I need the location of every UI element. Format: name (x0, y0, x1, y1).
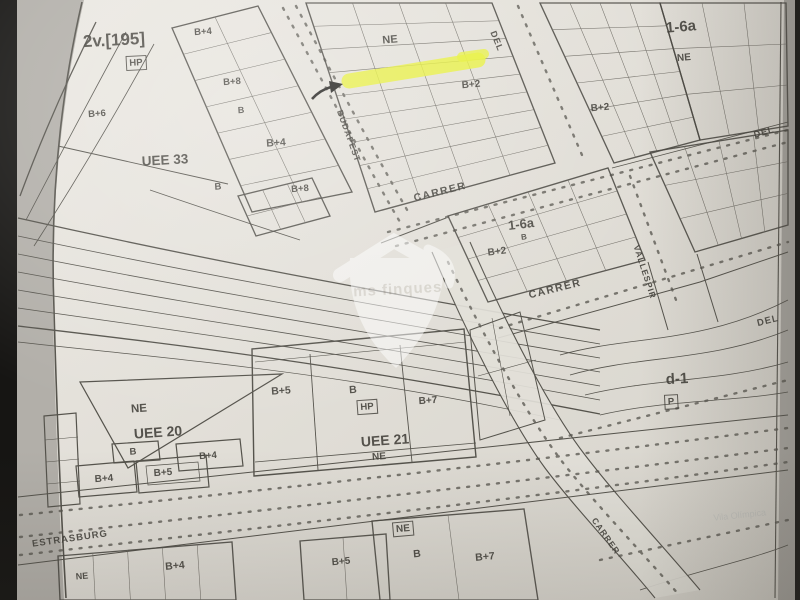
map-label-text-zone-uee-21: UEE 21 (360, 430, 409, 449)
map-label-text-b5-uee21: B+5 (271, 384, 292, 397)
map-label-ne-uee20: NE (131, 402, 148, 415)
map-label-zone-uee-33: UEE 33 (141, 151, 189, 168)
map-label-text-b2-top-center: B+2 (461, 79, 481, 92)
map-label-text-b2-top-right: B+2 (590, 102, 610, 115)
map-label-b8-nw: B+8 (223, 76, 241, 88)
map-label-text-b8-nw-2: B+8 (291, 183, 309, 195)
map-label-text-b-s: B (413, 548, 422, 561)
map-label-b5-s: B+5 (331, 556, 351, 569)
map-label-text-b6-w: B+6 (88, 108, 106, 120)
map-label-zone-2v-195: 2v.[195] (83, 29, 146, 51)
map-label-zone-uee-20: UEE 20 (133, 422, 182, 441)
map-label-text-b2-center: B+2 (487, 245, 507, 258)
map-label-b-uee20: B (129, 446, 137, 457)
map-label-text-ne-s-mid: NE (396, 523, 411, 535)
map-label-text-zone-uee-33: UEE 33 (141, 151, 189, 168)
map-label-text-ne-top-center: NE (382, 33, 398, 46)
map-label-b2-top-center: B+2 (461, 79, 481, 92)
map-label-text-b7-s: B+7 (475, 550, 496, 564)
map-label-b-nw-1: B (237, 105, 245, 115)
map-label-text-hp-box-nw: HP (129, 57, 143, 69)
map-label-text-zone-2v-195: 2v.[195] (83, 29, 146, 51)
map-label-text-ne-uee21: NE (372, 451, 387, 463)
map-label-text-ne-uee20: NE (131, 402, 148, 415)
map-label-zone-1-6a-ne: 1-6a (665, 17, 697, 37)
map-label-text-b4-s: B+4 (165, 559, 186, 573)
map-label-b7-uee21: B+7 (418, 395, 438, 407)
map-label-b4-nw-2: B+4 (266, 136, 287, 149)
photographed-cadastral-map: 2v.[195]HPB+4B+8B+6BB+4BB+8UEE 33NEDELB+… (0, 0, 800, 600)
map-label-ne-uee21: NE (372, 451, 387, 463)
map-label-text-b4-uee20-1: B+4 (199, 450, 218, 462)
map-label-text-b4-uee20-2: B+4 (94, 473, 114, 485)
map-label-b5-uee20: B+5 (153, 467, 173, 479)
map-label-text-b5-s: B+5 (331, 556, 351, 569)
map-label-text-ne-top-right: NE (677, 52, 692, 64)
map-label-zone-d-1: d-1 (665, 370, 688, 388)
map-label-b4-s: B+4 (165, 559, 186, 573)
map-label-zone-uee-21: UEE 21 (360, 430, 409, 449)
map-label-b7-s: B+7 (475, 550, 496, 564)
cadastral-map-canvas: 2v.[195]HPB+4B+8B+6BB+4BB+8UEE 33NEDELB+… (0, 0, 800, 600)
map-label-b-s: B (413, 548, 422, 561)
map-label-text-b5-uee20: B+5 (153, 467, 173, 479)
map-label-b4-nw-1: B+4 (194, 26, 213, 38)
map-label-text-b4-nw-1: B+4 (194, 26, 213, 38)
map-label-text-zone-d-1: d-1 (665, 370, 688, 388)
map-label-text-b7-uee21: B+7 (418, 395, 438, 407)
map-label-b8-nw-2: B+8 (291, 183, 309, 195)
map-label-b6-w: B+6 (88, 108, 106, 120)
map-label-text-b-nw-2: B (214, 181, 222, 192)
map-label-b5-uee21: B+5 (271, 384, 292, 397)
map-label-b4-uee20-1: B+4 (199, 450, 218, 462)
map-label-text-ne-s-left: NE (75, 570, 88, 581)
map-label-text-b-uee21: B (349, 384, 358, 397)
map-label-b2-center: B+2 (487, 245, 507, 258)
map-label-b4-uee20-2: B+4 (94, 473, 114, 485)
map-label-b-nw-2: B (214, 181, 222, 192)
map-label-text-zone-1-6a-ne: 1-6a (665, 17, 697, 37)
map-label-text-zone-uee-20: UEE 20 (133, 422, 182, 441)
map-label-ne-s-left: NE (75, 570, 88, 581)
map-label-b2-top-right: B+2 (590, 102, 610, 115)
map-label-ne-top-center: NE (382, 33, 398, 46)
map-label-text-b-nw-1: B (237, 105, 245, 115)
map-label-text-b4-nw-2: B+4 (266, 136, 287, 149)
map-label-text-b-uee20: B (129, 446, 137, 457)
map-label-b-uee21: B (349, 384, 358, 397)
map-label-text-hp-box-uee21: HP (360, 401, 375, 413)
map-label-text-b8-nw: B+8 (223, 76, 241, 88)
map-label-ne-top-right: NE (677, 52, 692, 64)
